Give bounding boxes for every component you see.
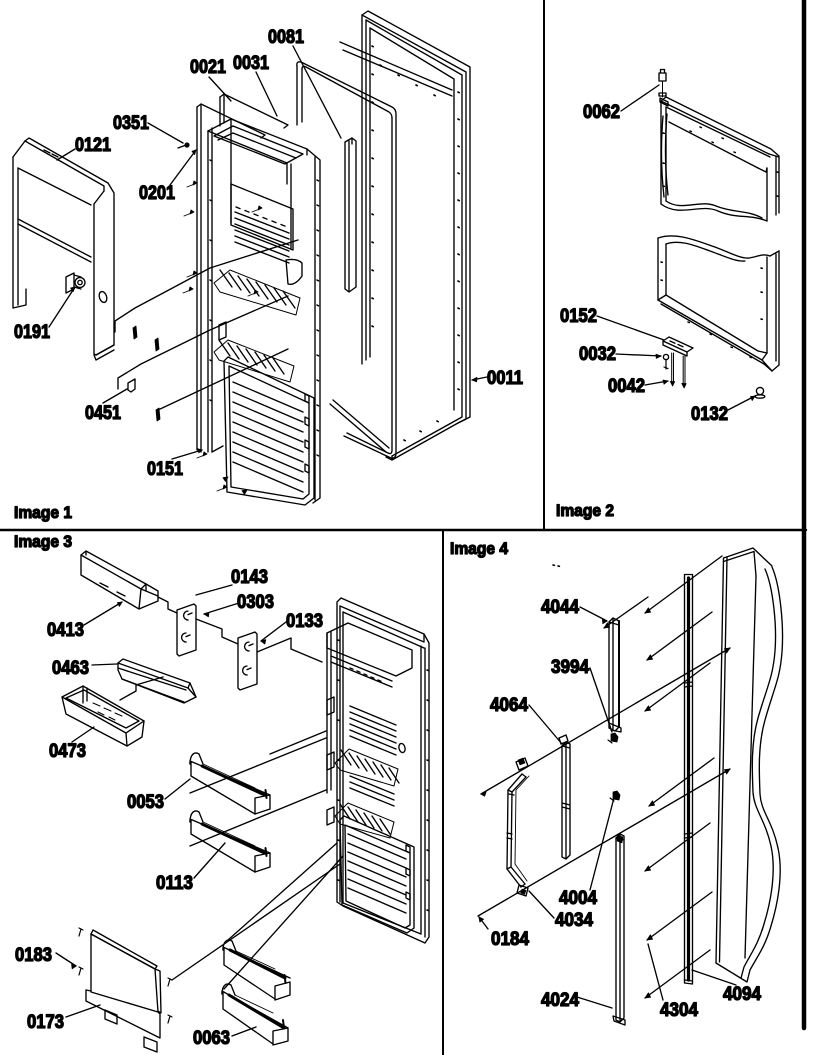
svg-text:0132: 0132	[691, 404, 728, 425]
svg-text:0031: 0031	[233, 53, 269, 74]
svg-text:0191: 0191	[14, 322, 50, 343]
svg-text:Image 4: Image 4	[450, 539, 508, 558]
svg-text:0413: 0413	[47, 620, 84, 641]
svg-text:0113: 0113	[156, 873, 193, 894]
svg-text:0351: 0351	[113, 113, 149, 134]
svg-text:4044: 4044	[541, 597, 579, 618]
svg-text:4304: 4304	[660, 1000, 698, 1021]
svg-text:0053: 0053	[127, 792, 164, 813]
svg-text:Image 1: Image 1	[14, 503, 72, 522]
svg-text:0081: 0081	[268, 27, 304, 48]
svg-text:0451: 0451	[85, 403, 121, 424]
svg-text:0473: 0473	[49, 741, 86, 762]
svg-text:0063: 0063	[193, 1028, 230, 1049]
svg-text:0303: 0303	[237, 592, 274, 613]
svg-text:0133: 0133	[286, 611, 323, 632]
svg-text:0021: 0021	[190, 57, 226, 78]
svg-text:4034: 4034	[555, 910, 593, 931]
svg-text:4024: 4024	[541, 990, 579, 1011]
svg-text:0173: 0173	[27, 1012, 64, 1033]
svg-text:0042: 0042	[608, 376, 645, 397]
svg-text:0184: 0184	[491, 929, 529, 950]
svg-text:0183: 0183	[15, 945, 52, 966]
svg-text:0201: 0201	[139, 183, 175, 204]
svg-text:0121: 0121	[75, 135, 111, 156]
svg-text:3994: 3994	[551, 657, 589, 678]
svg-text:0152: 0152	[560, 306, 597, 327]
svg-text:4004: 4004	[559, 888, 597, 909]
svg-text:0463: 0463	[52, 658, 89, 679]
svg-text:0143: 0143	[231, 567, 268, 588]
svg-text:0151: 0151	[147, 459, 183, 480]
svg-text:0062: 0062	[583, 102, 620, 123]
svg-text:Image 2: Image 2	[556, 501, 614, 520]
svg-text:Image 3: Image 3	[14, 532, 72, 551]
svg-text:0011: 0011	[487, 368, 523, 389]
svg-text:4094: 4094	[723, 984, 761, 1005]
svg-text:4064: 4064	[490, 695, 528, 716]
svg-text:0032: 0032	[579, 344, 616, 365]
